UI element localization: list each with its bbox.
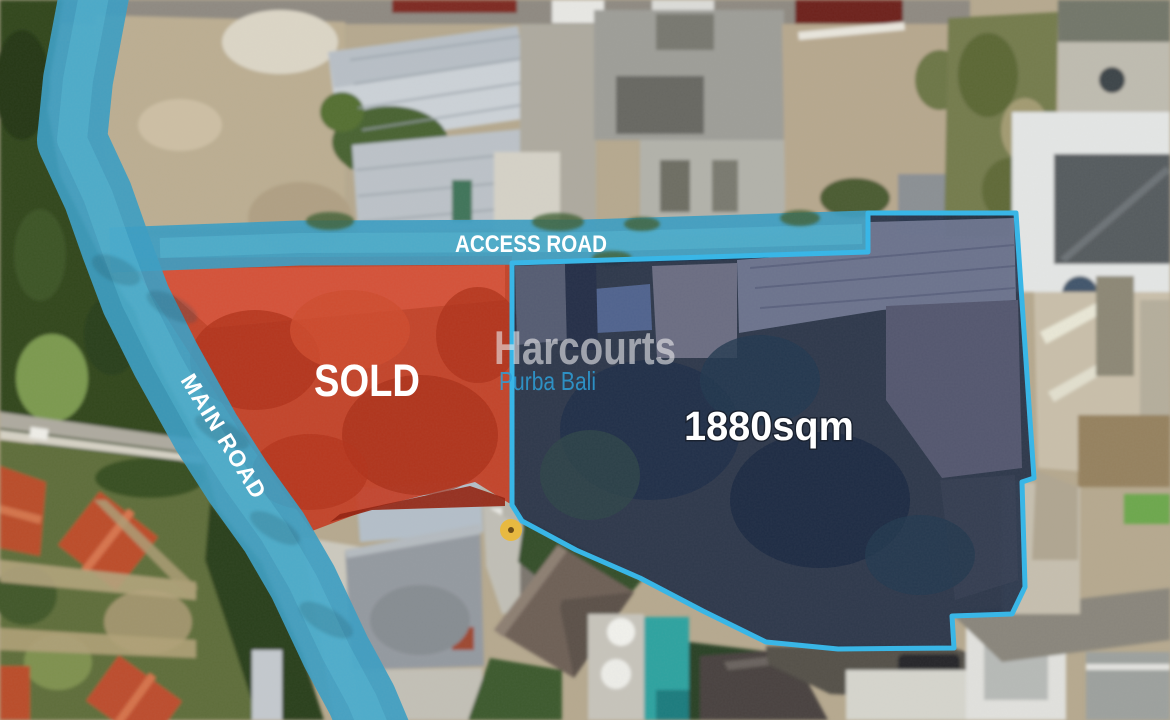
svg-text:ACCESS ROAD: ACCESS ROAD — [455, 231, 607, 258]
svg-text:Purba Bali: Purba Bali — [499, 366, 596, 396]
svg-text:1880sqm: 1880sqm — [684, 403, 854, 449]
svg-text:SOLD: SOLD — [314, 355, 420, 406]
